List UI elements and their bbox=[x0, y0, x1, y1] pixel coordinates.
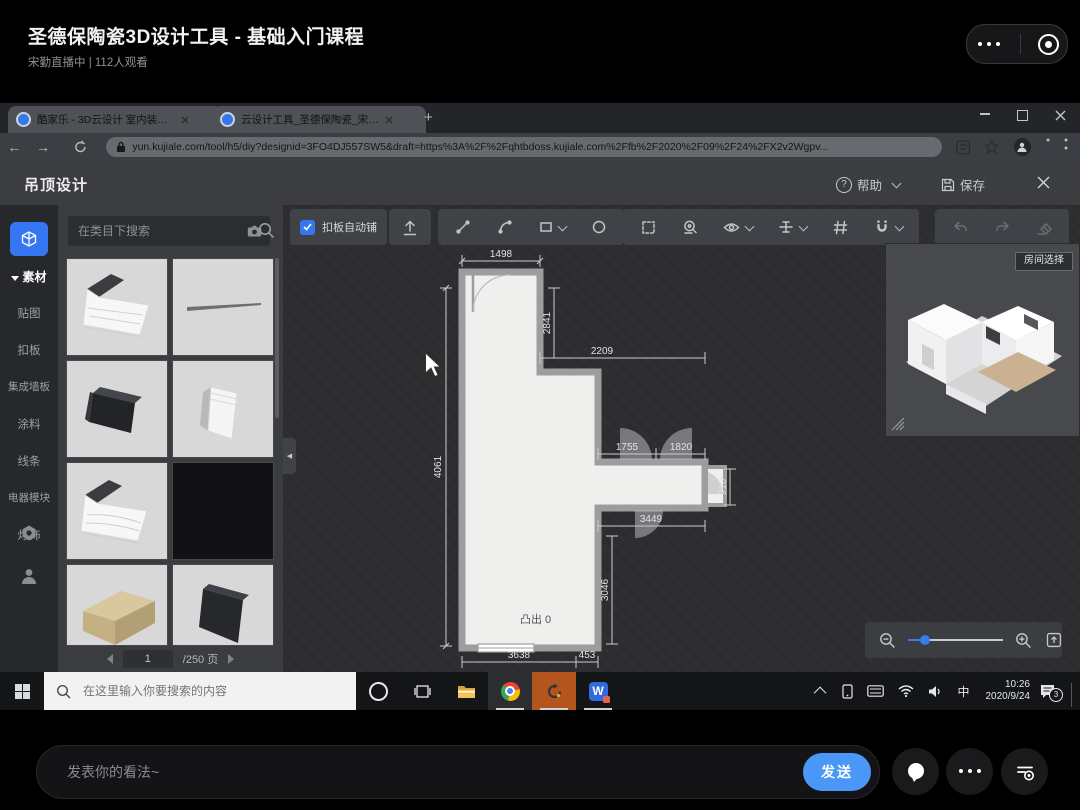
app-close-button[interactable] bbox=[1037, 176, 1050, 189]
sidebar-item-xiantiao[interactable]: 线条 bbox=[0, 453, 58, 469]
svg-text:3046: 3046 bbox=[600, 578, 611, 601]
browser-toolbar: ← → yun.kujiale.com/tool/h5/diy?designid… bbox=[0, 133, 1080, 161]
save-disk-icon bbox=[941, 178, 955, 192]
browser-tab-2[interactable]: 云设计工具_圣德保陶瓷_宋勤-保 bbox=[212, 106, 426, 133]
sidebar-item-dianqimokuai[interactable]: 电器模块 bbox=[0, 490, 58, 505]
rail-3d-materials-button[interactable] bbox=[10, 222, 48, 256]
3d-preview-panel[interactable]: 房间选择 bbox=[885, 243, 1080, 437]
line-tool-button[interactable] bbox=[442, 209, 484, 245]
svg-text:3449: 3449 bbox=[640, 514, 663, 525]
snap-button[interactable] bbox=[861, 209, 915, 245]
cortana-icon bbox=[369, 682, 388, 701]
caret-down-icon bbox=[11, 276, 19, 281]
material-thumbnail-crown-molding-2[interactable] bbox=[66, 462, 168, 560]
svg-text:453: 453 bbox=[579, 650, 596, 661]
danmaku-settings-button[interactable] bbox=[1001, 748, 1048, 795]
visibility-button[interactable] bbox=[711, 209, 765, 245]
sidebar-item-qiangban[interactable]: 集成墙板 bbox=[0, 379, 58, 394]
circle-tool-button[interactable] bbox=[578, 209, 620, 245]
window-minimize-button[interactable] bbox=[980, 113, 990, 115]
redo-icon bbox=[994, 220, 1011, 234]
player-capsule bbox=[966, 24, 1068, 64]
material-thumbnail-crown-molding[interactable] bbox=[66, 258, 168, 356]
chat-bubble-icon bbox=[905, 761, 927, 783]
window-close-button[interactable] bbox=[1055, 110, 1066, 121]
material-thumbnail-wood-block[interactable] bbox=[66, 564, 168, 646]
clear-button[interactable] bbox=[1023, 209, 1065, 245]
stream-status: 宋勤直播中 | 112人观看 bbox=[28, 54, 148, 70]
3d-house-render bbox=[886, 244, 1079, 436]
view-tools-group bbox=[623, 209, 919, 245]
category-search-box[interactable] bbox=[68, 216, 270, 246]
folder-icon bbox=[457, 684, 476, 699]
wps-icon: W bbox=[589, 682, 608, 701]
marquee-icon bbox=[641, 220, 656, 235]
grid-icon bbox=[833, 220, 848, 235]
fit-screen-icon[interactable] bbox=[1046, 632, 1062, 648]
kujiale-favicon bbox=[220, 112, 235, 127]
floorplan[interactable]: 1498 4061 2841 2209 1755 1820 910 3449 3… bbox=[420, 248, 740, 672]
cortana-button[interactable] bbox=[356, 672, 400, 710]
more-options-button[interactable] bbox=[946, 748, 993, 795]
volume-icon[interactable] bbox=[928, 685, 943, 698]
player-more-button[interactable] bbox=[976, 35, 1003, 53]
cube-icon bbox=[20, 230, 38, 248]
bookmark-star-icon[interactable] bbox=[984, 139, 999, 155]
history-tools-group bbox=[935, 209, 1069, 245]
panel-scrollbar[interactable] bbox=[275, 258, 279, 418]
new-tab-button[interactable]: + bbox=[424, 109, 433, 126]
list-eye-icon bbox=[1014, 761, 1036, 783]
zoom-slider-handle[interactable] bbox=[920, 635, 930, 645]
room-select-button[interactable]: 房间选择 bbox=[1015, 252, 1073, 271]
magnet-icon bbox=[874, 219, 890, 235]
left-rail: 素材 贴图 扣板 集成墙板 涂料 线条 电器模块 灯饰 bbox=[0, 205, 58, 672]
material-thumbnail-dark-panel-2[interactable] bbox=[172, 564, 274, 646]
save-label: 保存 bbox=[960, 175, 985, 194]
tape-measure-icon bbox=[682, 219, 698, 235]
clock-time: 10:26 bbox=[1005, 679, 1030, 690]
lock-icon bbox=[116, 141, 126, 153]
chat-bubble-button[interactable] bbox=[892, 748, 939, 795]
auto-tile-label: 扣板自动铺 bbox=[322, 219, 377, 235]
page-title: 吊顶设计 bbox=[24, 174, 88, 195]
chat-input-bar[interactable]: 发送 bbox=[36, 745, 880, 799]
eye-icon bbox=[723, 221, 740, 234]
svg-text:3638: 3638 bbox=[508, 650, 531, 661]
capsule-divider bbox=[1020, 34, 1021, 54]
help-label: 帮助 bbox=[857, 175, 882, 194]
upload-group bbox=[389, 209, 431, 245]
pagination: 1 /250 页 bbox=[58, 646, 283, 672]
reload-icon[interactable] bbox=[66, 140, 95, 154]
material-thumbnail-baseboard[interactable] bbox=[172, 360, 274, 458]
zoom-slider-track[interactable] bbox=[908, 639, 1003, 641]
material-thumbnail-dark-panel[interactable] bbox=[66, 360, 168, 458]
rectangle-tool-icon bbox=[539, 220, 553, 234]
undo-button[interactable] bbox=[939, 209, 981, 245]
page-next-icon[interactable] bbox=[228, 654, 234, 664]
sidebar-item-tuliao[interactable]: 涂料 bbox=[0, 416, 58, 432]
ime-indicator[interactable]: 中 bbox=[957, 683, 969, 700]
system-tray: 中 10:26 2020/9/24 3 bbox=[809, 672, 1080, 710]
upload-icon bbox=[402, 219, 418, 236]
chrome-icon bbox=[501, 682, 520, 701]
forward-icon[interactable]: → bbox=[29, 139, 58, 155]
tab-title: 云设计工具_圣德保陶瓷_宋勤-保 bbox=[241, 112, 379, 127]
category-label: 素材 bbox=[22, 270, 46, 284]
svg-text:1755: 1755 bbox=[616, 442, 639, 453]
task-view-button[interactable] bbox=[400, 672, 444, 710]
sidebar-category-materials[interactable]: 素材 bbox=[0, 268, 58, 285]
taskbar-clock[interactable]: 10:26 2020/9/24 bbox=[986, 679, 1031, 703]
browser-tab-strip: 酷家乐 - 3D云设计 室内装修效 云设计工具_圣德保陶瓷_宋勤-保 + bbox=[0, 103, 1080, 133]
file-explorer-button[interactable] bbox=[444, 672, 488, 710]
windows-taskbar: W 中 10:26 2020/9/24 3 bbox=[0, 672, 1080, 710]
player-record-icon[interactable] bbox=[1038, 34, 1059, 55]
window-maximize-button[interactable] bbox=[1017, 110, 1028, 121]
taskbar-search-icon bbox=[56, 684, 71, 699]
wps-taskbar-button[interactable]: W bbox=[576, 672, 620, 710]
help-icon: ? bbox=[836, 177, 852, 193]
save-button[interactable]: 保存 bbox=[941, 175, 985, 194]
design-canvas[interactable]: 扣板自动铺 bbox=[283, 205, 1080, 672]
app-header: 吊顶设计 ? 帮助 保存 bbox=[0, 161, 1080, 206]
kujiale-favicon bbox=[16, 112, 31, 127]
zoom-control bbox=[865, 622, 1062, 658]
eraser-icon bbox=[1036, 219, 1053, 236]
phone-icon[interactable] bbox=[842, 684, 853, 699]
zoom-out-icon[interactable] bbox=[879, 632, 896, 649]
sidebar-item-kouban[interactable]: 扣板 bbox=[0, 342, 58, 358]
marquee-select-button[interactable] bbox=[627, 209, 669, 245]
tab-close-icon[interactable] bbox=[181, 116, 189, 124]
show-desktop-divider[interactable] bbox=[1071, 683, 1072, 707]
auto-tile-checkbox[interactable] bbox=[300, 220, 315, 235]
back-icon[interactable]: ← bbox=[0, 139, 29, 155]
profile-avatar[interactable] bbox=[1014, 138, 1031, 156]
notification-center-button[interactable]: 3 bbox=[1040, 684, 1057, 699]
undo-icon bbox=[952, 220, 969, 234]
rectangle-tool-button[interactable] bbox=[526, 209, 578, 245]
translate-icon[interactable] bbox=[956, 140, 970, 155]
search-input[interactable] bbox=[76, 223, 247, 239]
taskbar-search-input[interactable] bbox=[81, 683, 344, 699]
address-bar[interactable]: yun.kujiale.com/tool/h5/diy?designid=3FO… bbox=[106, 137, 942, 157]
page-total-label: /250 页 bbox=[183, 651, 218, 667]
page-prev-icon[interactable] bbox=[107, 654, 113, 664]
measure-button[interactable] bbox=[669, 209, 711, 245]
material-thumbnail-thin-strip[interactable] bbox=[172, 258, 274, 356]
chrome-taskbar-button[interactable] bbox=[488, 672, 532, 710]
chat-input[interactable] bbox=[65, 763, 803, 781]
clock-date: 2020/9/24 bbox=[986, 691, 1031, 702]
panel-collapse-handle[interactable]: ◀ bbox=[283, 438, 296, 474]
materials-panel: 1 /250 页 bbox=[58, 205, 283, 672]
hexagon-tool-icon[interactable] bbox=[20, 524, 38, 542]
search-icon[interactable] bbox=[258, 222, 275, 239]
zoom-in-icon[interactable] bbox=[1015, 632, 1032, 649]
browser-tab-1[interactable]: 酷家乐 - 3D云设计 室内装修效 bbox=[8, 106, 222, 133]
svg-text:4061: 4061 bbox=[433, 455, 444, 478]
dimension-display-button[interactable] bbox=[765, 209, 819, 245]
tray-expand-icon[interactable] bbox=[814, 686, 827, 699]
auto-tile-toggle-group: 扣板自动铺 bbox=[290, 209, 387, 245]
svg-text:2841: 2841 bbox=[542, 311, 553, 334]
line-tool-icon bbox=[455, 219, 471, 235]
help-button[interactable]: ? 帮助 bbox=[836, 175, 900, 194]
circular-arrow-icon bbox=[545, 682, 564, 701]
tab-close-icon[interactable] bbox=[385, 116, 393, 124]
svg-text:1820: 1820 bbox=[670, 442, 693, 453]
svg-text:2209: 2209 bbox=[591, 346, 614, 357]
task-view-icon bbox=[414, 684, 431, 699]
notification-badge: 3 bbox=[1049, 688, 1063, 702]
start-button[interactable] bbox=[0, 672, 44, 710]
protrude-label: 凸出 0 bbox=[520, 612, 551, 626]
url-text: yun.kujiale.com/tool/h5/diy?designid=3FO… bbox=[132, 141, 912, 153]
resize-handle[interactable] bbox=[890, 416, 906, 432]
arc-tool-button[interactable] bbox=[484, 209, 526, 245]
svg-text:910: 910 bbox=[718, 478, 729, 495]
tab-title: 酷家乐 - 3D云设计 室内装修效 bbox=[37, 112, 175, 127]
dimension-icon bbox=[778, 219, 794, 235]
stream-title: 圣德保陶瓷3D设计工具 - 基础入门课程 bbox=[28, 22, 364, 49]
upload-button[interactable] bbox=[389, 209, 431, 245]
user-profile-icon[interactable] bbox=[20, 567, 38, 585]
taskbar-search-box[interactable] bbox=[44, 672, 356, 710]
more-dots-icon bbox=[956, 763, 983, 781]
material-thumbnail-black-swatch[interactable] bbox=[172, 462, 274, 560]
svg-text:1498: 1498 bbox=[490, 249, 513, 260]
browser-menu-icon[interactable] bbox=[1038, 135, 1074, 158]
draw-tools-group bbox=[438, 209, 624, 245]
wifi-icon[interactable] bbox=[898, 685, 914, 697]
keyboard-icon[interactable] bbox=[867, 685, 884, 697]
mouse-cursor bbox=[424, 352, 442, 378]
page-number-input[interactable]: 1 bbox=[123, 650, 173, 668]
circle-tool-icon bbox=[591, 219, 607, 235]
windows-logo-icon bbox=[15, 684, 30, 699]
sidebar-item-tietu[interactable]: 贴图 bbox=[0, 305, 58, 321]
redo-button[interactable] bbox=[981, 209, 1023, 245]
grid-toggle-button[interactable] bbox=[819, 209, 861, 245]
send-button[interactable]: 发送 bbox=[803, 753, 871, 791]
arc-tool-icon bbox=[497, 219, 513, 235]
streaming-app-button[interactable] bbox=[532, 672, 576, 710]
